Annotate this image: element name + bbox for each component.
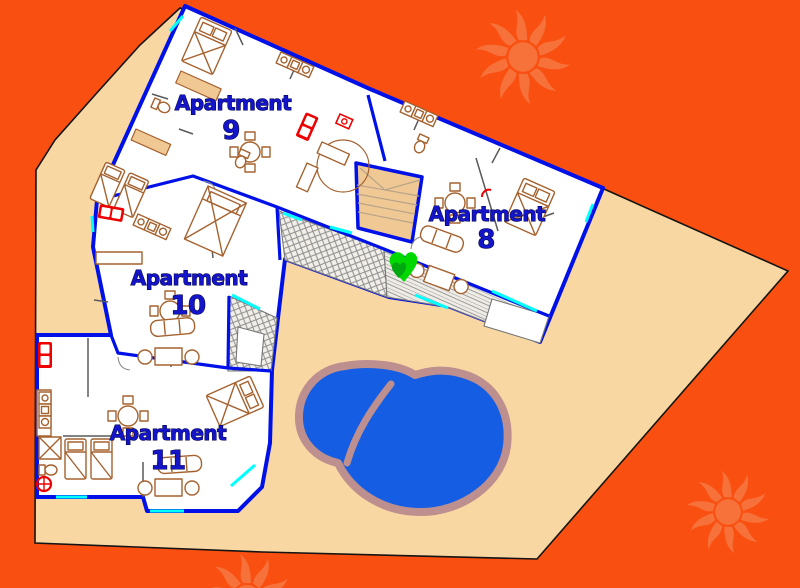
apartment-10-label: Apartment	[131, 266, 248, 290]
apartment-8-label: Apartment	[429, 202, 546, 226]
apartment-11-number: 11	[150, 446, 185, 476]
kitchen-counter	[39, 392, 51, 428]
shower	[39, 437, 61, 459]
sideboard	[96, 252, 142, 264]
site-plan: Apartment 9 Apartment 8 Apartment 10 Apa…	[0, 0, 800, 588]
site-plan-canvas: Apartment 9 Apartment 8 Apartment 10 Apa…	[0, 0, 800, 588]
toilet	[39, 465, 57, 475]
separator-terrace-left	[228, 296, 229, 368]
apartment-10-number: 10	[170, 291, 205, 321]
stairwell-slab	[356, 163, 422, 242]
apartment-8-number: 8	[477, 225, 495, 255]
apartment-9-label: Apartment	[175, 91, 292, 115]
apartment-9-number: 9	[222, 116, 240, 146]
apartment-10-terrace-pad	[236, 327, 264, 366]
coffee-table-chairs	[138, 348, 199, 365]
apartment-11-label: Apartment	[110, 421, 227, 445]
red-appliance-apt11	[38, 342, 52, 368]
shared-stairwell	[356, 163, 422, 242]
coffee-table-chairs	[138, 479, 199, 496]
